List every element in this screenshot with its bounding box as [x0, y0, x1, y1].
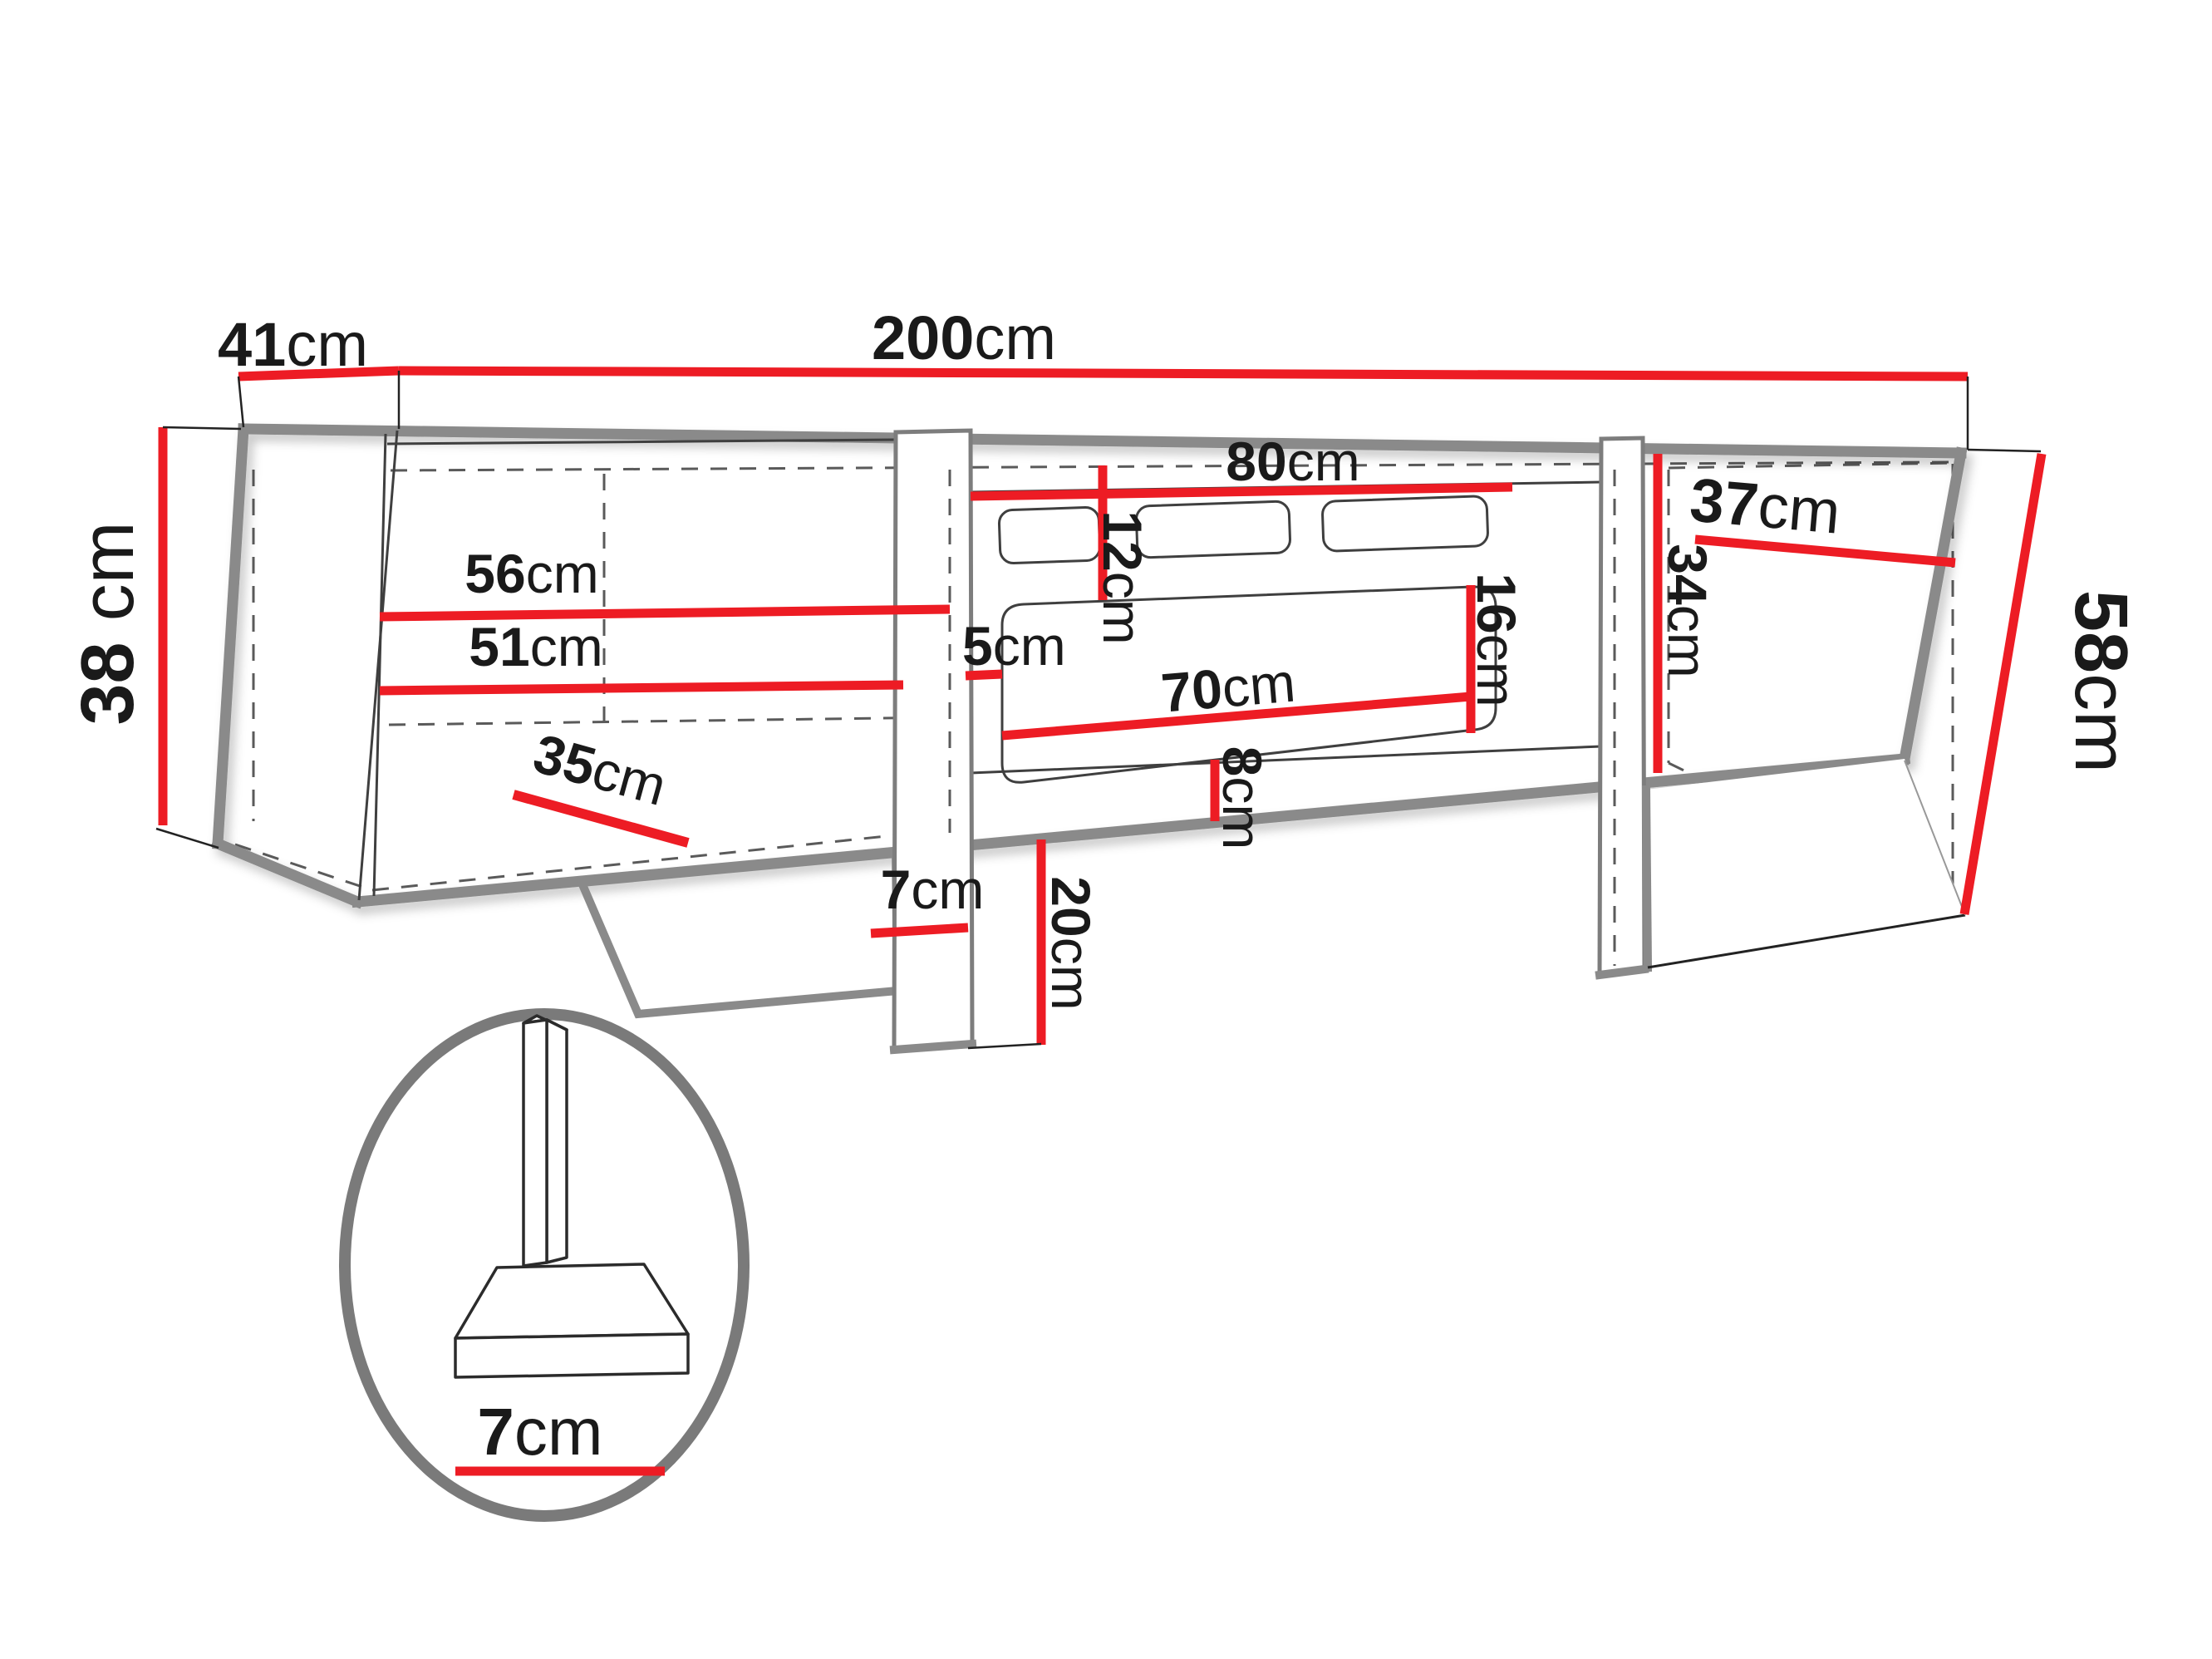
right-divider-foot-edge — [1600, 969, 1644, 975]
dim-line-51cm — [380, 685, 903, 691]
right-leg-left-edge — [1646, 790, 1648, 967]
label-51cm: 51cm — [469, 616, 602, 677]
label-38cm: 38 cm — [66, 521, 150, 725]
label-5cm: 5cm — [962, 615, 1066, 677]
label-20cm: 20cm — [1040, 876, 1102, 1010]
left-leg-foot-edge — [894, 1044, 972, 1050]
right-divider-leg-strip — [1600, 438, 1644, 975]
label-56cm: 56cm — [465, 543, 598, 604]
dim-line-200cm — [399, 371, 1968, 377]
dim-line-7cm-leg — [871, 928, 968, 933]
label-70cm: 70cm — [1159, 651, 1298, 723]
detail-foot-plate — [455, 1334, 688, 1377]
label-7cm-detail: 7cm — [477, 1395, 602, 1469]
label-37cm: 37cm — [1687, 465, 1843, 546]
diagram-page: 41cm 200cm 38 cm 56cm 51cm 35cm 80cm 12c… — [0, 0, 2212, 1659]
label-80cm: 80cm — [1226, 431, 1359, 492]
label-16cm: 16cm — [1466, 573, 1527, 706]
detail-leg-front-face — [524, 1020, 547, 1266]
label-8cm: 8cm — [1212, 746, 1273, 850]
label-7cm-leg: 7cm — [881, 859, 985, 920]
furniture-dimension-diagram: 41cm 200cm 38 cm 56cm 51cm 35cm 80cm 12c… — [0, 0, 2212, 1659]
detail-leg-side-face — [547, 1020, 567, 1263]
label-58cm: 58cm — [2059, 590, 2142, 773]
label-41cm: 41cm — [218, 310, 368, 379]
left-divider-leg-strip — [894, 431, 972, 1050]
label-200cm: 200cm — [872, 303, 1056, 372]
label-34cm: 34cm — [1657, 544, 1718, 677]
label-12cm: 12cm — [1092, 510, 1153, 644]
